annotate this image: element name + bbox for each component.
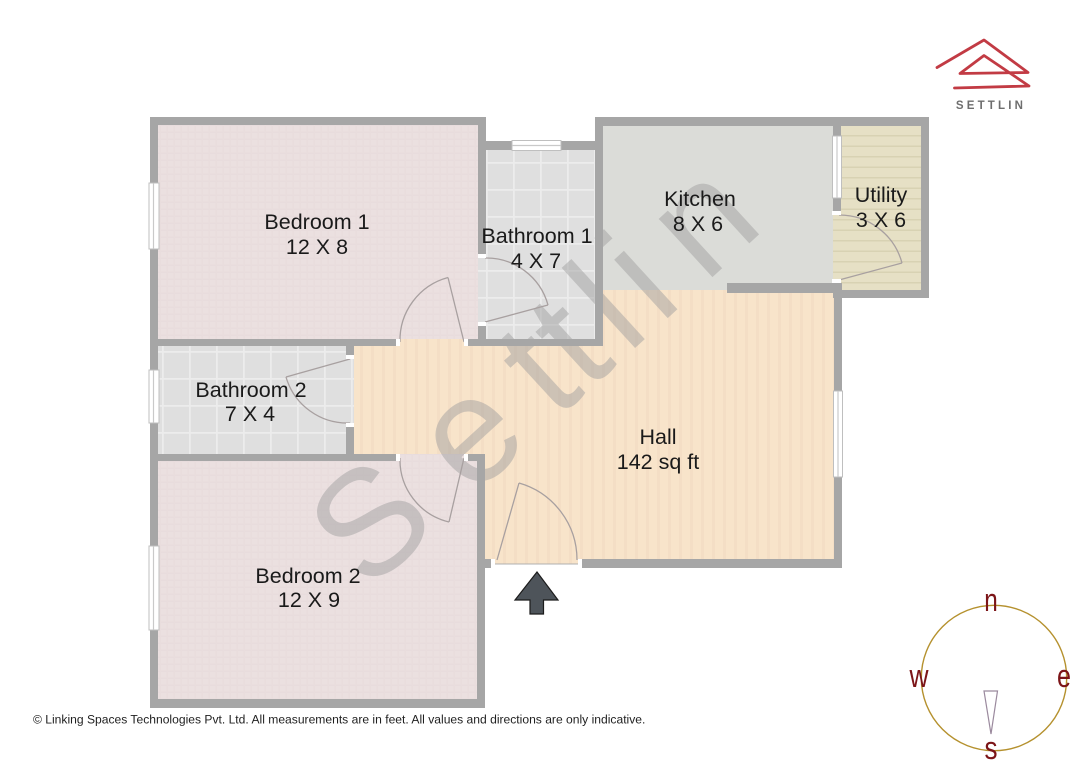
svg-text:142 sq ft: 142 sq ft (617, 450, 699, 474)
svg-text:Bedroom 1: Bedroom 1 (264, 210, 369, 234)
svg-text:e: e (1057, 658, 1071, 694)
svg-text:s: s (985, 730, 998, 764)
svg-text:12 X 8: 12 X 8 (286, 235, 348, 259)
svg-text:Bathroom 2: Bathroom 2 (195, 378, 306, 402)
svg-text:Hall: Hall (639, 425, 676, 449)
svg-text:n: n (984, 582, 998, 618)
svg-text:w: w (909, 658, 930, 694)
svg-text:12 X 9: 12 X 9 (278, 588, 340, 612)
svg-text:4 X 7: 4 X 7 (511, 249, 561, 273)
svg-text:3 X 6: 3 X 6 (856, 208, 906, 232)
svg-text:Utility: Utility (855, 183, 908, 207)
svg-text:Bathroom 1: Bathroom 1 (481, 224, 592, 248)
svg-text:7 X 4: 7 X 4 (225, 402, 275, 426)
svg-text:SETTLIN: SETTLIN (956, 100, 1026, 112)
svg-text:8 X 6: 8 X 6 (673, 212, 723, 236)
svg-text:Kitchen: Kitchen (664, 187, 736, 211)
svg-text:© Linking Spaces Technologies: © Linking Spaces Technologies Pvt. Ltd. … (33, 713, 645, 727)
svg-text:Bedroom 2: Bedroom 2 (255, 564, 360, 588)
